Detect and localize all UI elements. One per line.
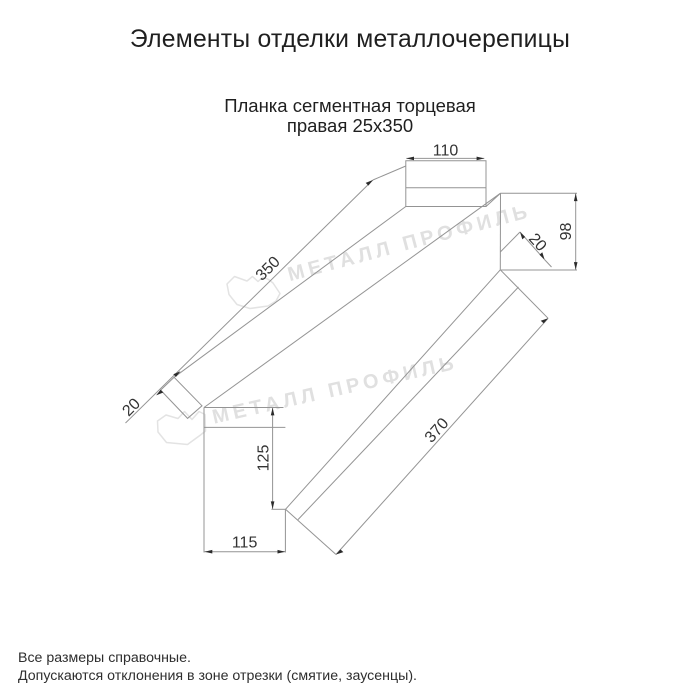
svg-text:370: 370 <box>422 415 453 446</box>
svg-text:350: 350 <box>253 253 284 284</box>
svg-text:МЕТАЛЛ ПРОФИЛЬ: МЕТАЛЛ ПРОФИЛЬ <box>210 352 460 429</box>
svg-text:20: 20 <box>119 395 144 420</box>
svg-text:110: 110 <box>433 143 459 160</box>
svg-text:115: 115 <box>232 534 258 551</box>
svg-text:125: 125 <box>255 445 272 472</box>
svg-text:20: 20 <box>525 230 550 255</box>
svg-text:МЕТАЛЛ ПРОФИЛЬ: МЕТАЛЛ ПРОФИЛЬ <box>285 200 533 286</box>
svg-text:98: 98 <box>558 223 575 241</box>
